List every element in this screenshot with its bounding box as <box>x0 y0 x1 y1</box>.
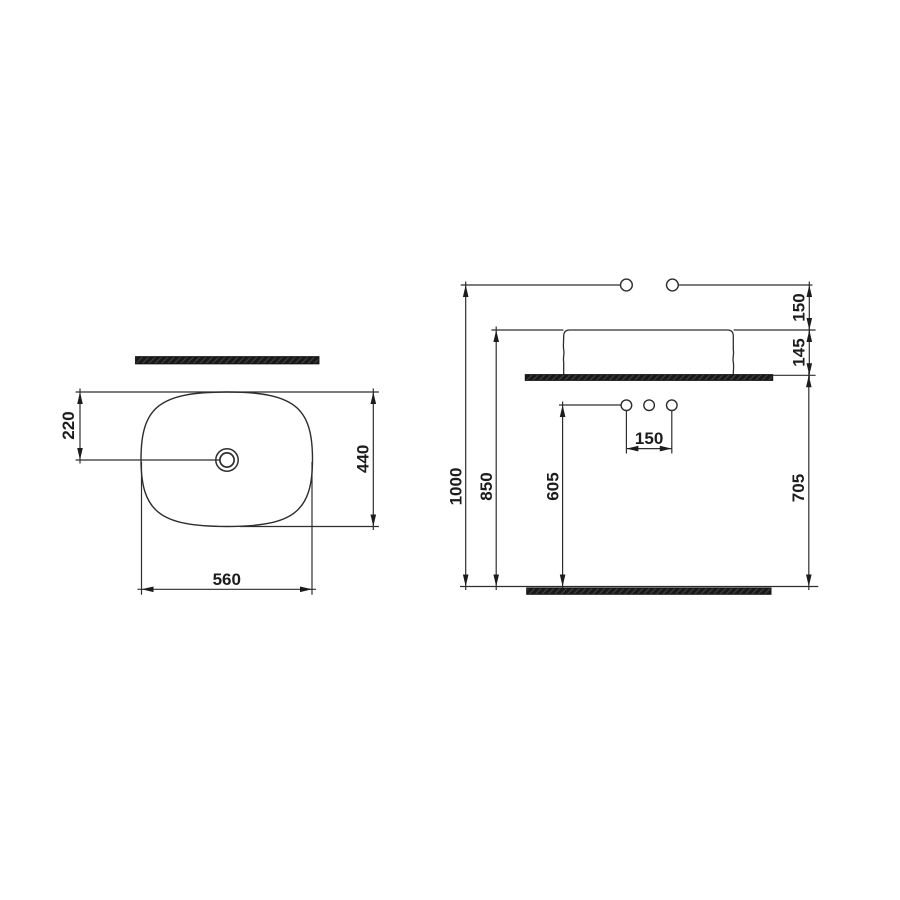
svg-text:850: 850 <box>477 472 496 500</box>
svg-text:150: 150 <box>789 293 808 321</box>
svg-text:1000: 1000 <box>447 468 466 506</box>
svg-text:150: 150 <box>635 429 663 448</box>
svg-text:560: 560 <box>213 570 241 589</box>
svg-text:220: 220 <box>59 411 78 439</box>
svg-text:705: 705 <box>789 474 808 502</box>
svg-text:440: 440 <box>354 445 373 473</box>
svg-text:145: 145 <box>789 338 808 366</box>
svg-text:605: 605 <box>544 472 563 500</box>
